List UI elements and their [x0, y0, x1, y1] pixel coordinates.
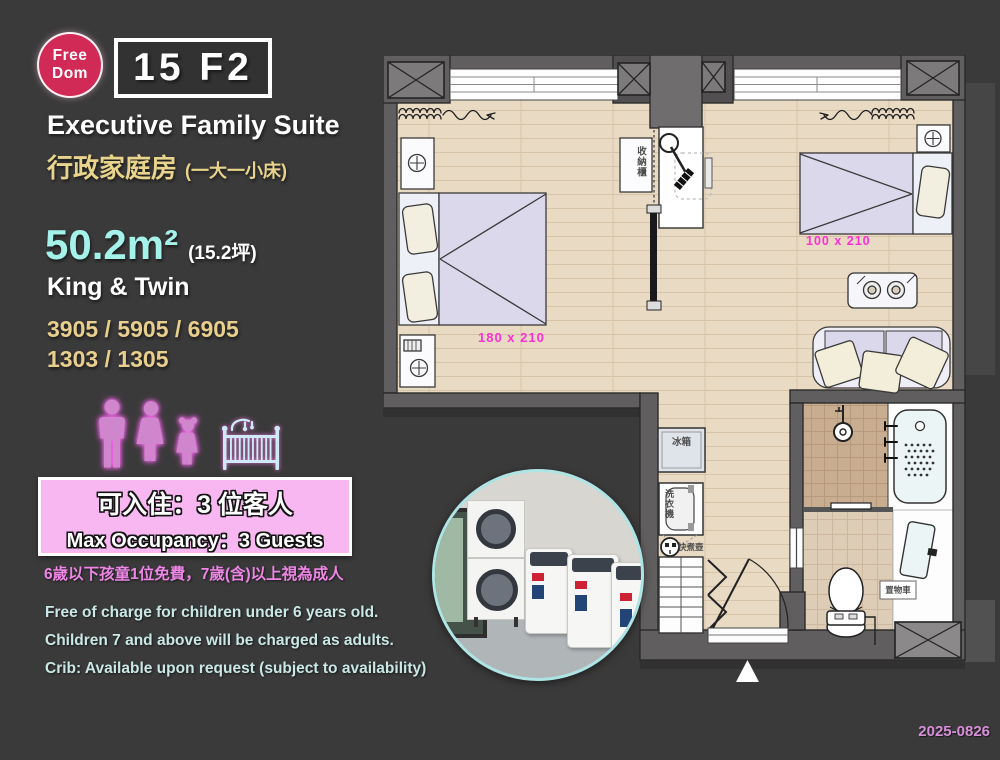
bed-config-note: (一大一小床)	[185, 161, 287, 181]
child-policy-en: Free of charge for children under 6 year…	[45, 599, 426, 683]
area-sqm: 50.2m²	[45, 221, 178, 268]
freedom-logo: Free Dom	[37, 32, 103, 98]
pocket-door	[790, 528, 803, 568]
room-numbers-line1: 3905 / 5905 / 6905	[47, 314, 239, 344]
logo-line1: Free	[53, 47, 88, 65]
photo-washer-front	[467, 558, 525, 620]
laundry-photo	[432, 469, 644, 681]
crib-icon	[218, 418, 284, 472]
revision-date: 2025-0826	[855, 723, 990, 740]
policy-en-line2: Children 7 and above will be charged as …	[45, 627, 426, 655]
man-icon	[92, 398, 132, 470]
bed-type: King & Twin	[47, 273, 190, 302]
king-bed	[399, 193, 546, 325]
wardrobe	[895, 622, 961, 658]
room-numbers: 3905 / 5905 / 6905 1303 / 1305	[47, 314, 239, 374]
cart-label: 置物車	[880, 584, 916, 596]
woman-icon	[131, 400, 171, 470]
area-line: 50.2m²(15.2坪)	[45, 221, 257, 269]
girl-icon	[171, 416, 205, 470]
kettle-label: 快煮壺	[678, 541, 704, 553]
occupancy-box: 可入住：3 位客人 Max Occupancy：3 Guests	[38, 477, 352, 556]
storage-cabinet-label: 收納櫃	[633, 146, 647, 178]
sofa	[813, 327, 950, 394]
bathtub	[885, 410, 946, 503]
room-title-en: Executive Family Suite	[47, 110, 340, 141]
exterior-strip-2	[965, 600, 995, 662]
child-policy-zh: 6歲以下孩童1位免費，7歲(含)以上視為成人	[44, 562, 344, 584]
twin-bed-dimension: 100 x 210	[806, 234, 871, 248]
policy-en-line3: Crib: Available upon request (subject to…	[45, 655, 426, 683]
twin-bed	[800, 153, 952, 234]
wall-shadow-2	[640, 660, 965, 669]
room-title-zh-text: 行政家庭房	[47, 153, 177, 183]
room-title-zh: 行政家庭房(一大一小床)	[47, 148, 287, 185]
photo-dryer	[467, 500, 525, 558]
shelf-unit	[659, 557, 703, 633]
exterior-strip	[965, 83, 995, 375]
occupancy-en: Max Occupancy：3 Guests	[41, 524, 349, 553]
nightstand-left-top	[401, 138, 434, 189]
policy-en-line1: Free of charge for children under 6 year…	[45, 599, 426, 627]
king-bed-dimension: 180 x 210	[478, 330, 545, 345]
nightstand-left-bottom	[400, 335, 435, 387]
logo-line2: Dom	[52, 65, 88, 83]
nightstand-twin	[917, 125, 950, 152]
photo-toploader-1	[525, 548, 573, 634]
wall-shadow	[383, 408, 640, 417]
area-ping: (15.2坪)	[188, 243, 257, 264]
fridge-label: 冰箱	[658, 434, 705, 448]
occupancy-zh: 可入住：3 位客人	[41, 485, 349, 521]
coffee-table	[848, 273, 917, 308]
photo-toploader-3	[611, 562, 644, 664]
room-numbers-line2: 1303 / 1305	[47, 344, 239, 374]
washer-label: 洗衣機	[663, 489, 676, 519]
room-code-badge: 15 F2	[114, 38, 272, 98]
room-info-sheet: Free Dom 15 F2 Executive Family Suite 行政…	[0, 0, 1000, 760]
